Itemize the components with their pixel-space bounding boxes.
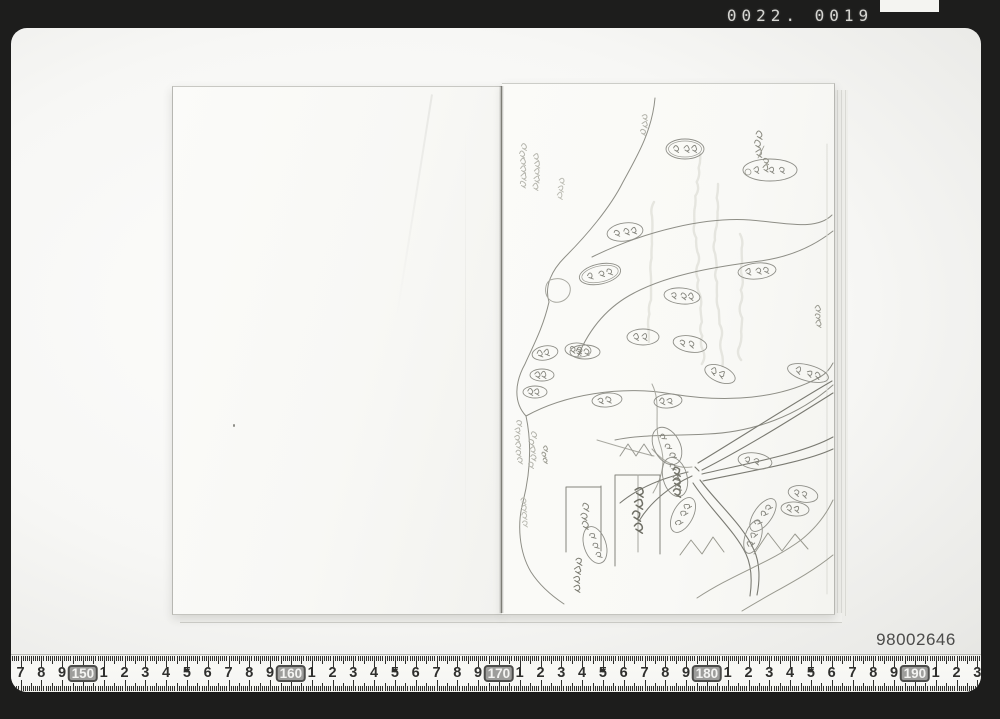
ruler-number: 6 — [620, 665, 628, 682]
ruler-number: 3 — [141, 665, 149, 682]
ruler-number: 4 — [786, 665, 794, 682]
measuring-ruler-cm: 7891501234567891601234567891701234567891… — [11, 654, 981, 692]
page-stack-edge-right — [834, 90, 848, 616]
hand-drawn-map — [502, 84, 834, 614]
ruler-number: 3 — [973, 665, 981, 682]
ruler-number: 7 — [224, 665, 232, 682]
ruler-number: 180 — [692, 665, 723, 683]
ruler-number: 1 — [724, 665, 732, 682]
ruler-number: 9 — [266, 665, 274, 682]
ruler-number: 9 — [474, 665, 482, 682]
ruler-number: 1 — [516, 665, 524, 682]
ruler-number: 1 — [100, 665, 108, 682]
paper-crease — [395, 94, 433, 321]
archive-id-number: 98002646 — [856, 630, 976, 650]
ruler-number: 170 — [484, 665, 515, 683]
book-page-right-map — [502, 83, 835, 615]
ruler-number: 4 — [370, 665, 378, 682]
ruler-number: 8 — [37, 665, 45, 682]
book-center-fold-line — [501, 86, 502, 613]
ruler-number: 2 — [120, 665, 128, 682]
ruler-number: 8 — [661, 665, 669, 682]
book-page-left-blank — [172, 86, 503, 615]
map-cursive-annotations — [515, 115, 821, 593]
ruler-number: 4 — [162, 665, 170, 682]
ruler-number: 8 — [453, 665, 461, 682]
ruler-number: 3 — [349, 665, 357, 682]
ruler-number: 3 — [557, 665, 565, 682]
ruler-number: 2 — [744, 665, 752, 682]
ruler-number: 9 — [890, 665, 898, 682]
film-edge-tab — [880, 0, 939, 12]
ruler-number: 6 — [412, 665, 420, 682]
ruler-number: 3 — [765, 665, 773, 682]
ruler-number: 6 — [204, 665, 212, 682]
ruler-number: 4 — [578, 665, 586, 682]
map-roads — [620, 381, 833, 596]
ruler-number: 160 — [276, 665, 307, 683]
ruler-number: 9 — [682, 665, 690, 682]
ruler-number: 7 — [640, 665, 648, 682]
ruler-number: 2 — [952, 665, 960, 682]
ruler-number: 7 — [16, 665, 24, 682]
ruler-number: 7 — [432, 665, 440, 682]
ruler-number: 1 — [308, 665, 316, 682]
ruler-number: 8 — [245, 665, 253, 682]
ruler-number: 6 — [828, 665, 836, 682]
ruler-number: 150 — [68, 665, 99, 683]
ruler-number: 1 — [932, 665, 940, 682]
paper-crease — [465, 127, 466, 547]
photo-stage: 98002646 7891501234567891601234567891701… — [11, 28, 981, 692]
ruler-number: 2 — [328, 665, 336, 682]
ruler-number: 8 — [869, 665, 877, 682]
ruler-number: 2 — [536, 665, 544, 682]
map-place-label-ovals — [523, 139, 830, 566]
ruler-number: 7 — [848, 665, 856, 682]
map-region-outlines — [517, 98, 833, 604]
frame-counter: 0022. 0019 — [700, 6, 900, 25]
ruler-number: 9 — [58, 665, 66, 682]
ruler-number: 190 — [900, 665, 931, 683]
dust-speck — [233, 424, 235, 427]
map-plot-rectangles — [566, 475, 660, 566]
ink-showthrough-columns — [648, 154, 743, 366]
